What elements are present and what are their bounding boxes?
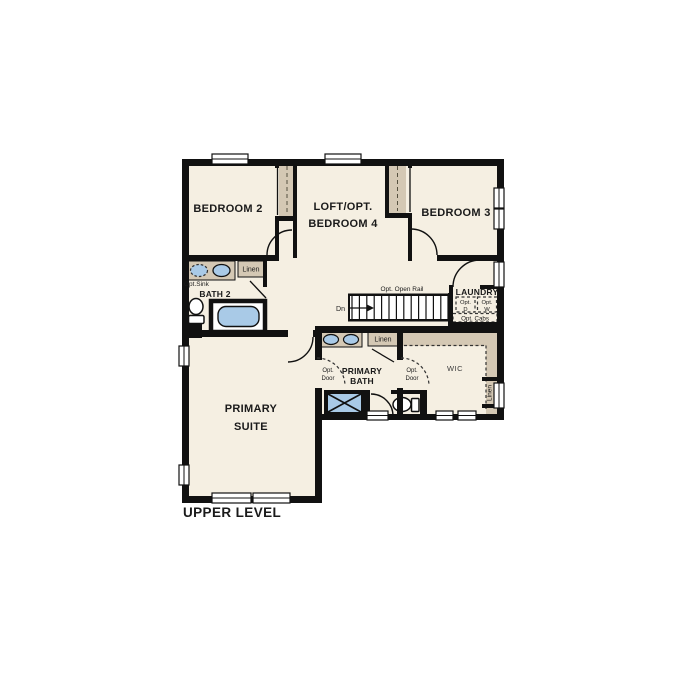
bath2-label: BATH 2: [199, 289, 230, 299]
wic-label: WIC: [447, 364, 463, 373]
linen-label-vertical: Linen: [487, 385, 494, 401]
bath2-vanity: [186, 261, 235, 280]
staircase: [348, 294, 452, 322]
window: [494, 209, 504, 229]
window: [494, 383, 504, 408]
primary-bath-vanity: [319, 332, 362, 347]
opt-dryer-label-line2: D: [463, 307, 467, 313]
opt-sink-label: Opt.Sink: [184, 281, 210, 288]
floor-plan-drawing: BEDROOM 2 LOFT/OPT. BEDROOM 4 BEDROOM 3 …: [0, 0, 687, 687]
toilet-icon: [393, 398, 419, 412]
shower: [324, 390, 365, 416]
opt-open-rail-label: Opt. Open Rail: [381, 286, 425, 293]
bedroom2-label: BEDROOM 2: [193, 203, 262, 215]
linen-label: Linen: [374, 337, 391, 344]
window: [458, 411, 476, 420]
linen-label: Linen: [242, 267, 259, 274]
opt-cabs-label: Opt. Cabs: [461, 316, 489, 323]
primary-bath-label-line2: BATH: [350, 376, 374, 386]
loft-label-line2: BEDROOM 4: [308, 218, 378, 230]
window: [494, 188, 504, 208]
opt-washer-label-line2: W: [484, 307, 490, 313]
opt-washer-label-line1: Opt.: [482, 300, 493, 306]
sink-icon: [344, 335, 359, 345]
window: [253, 493, 290, 503]
bedroom3-label: BEDROOM 3: [421, 207, 490, 219]
bathtub: [211, 301, 265, 332]
stairs-down-label: Dn: [336, 306, 345, 313]
page-title: UPPER LEVEL: [183, 505, 281, 520]
opt-dryer-label-line1: Opt.: [460, 300, 471, 306]
window: [212, 493, 251, 503]
sink-icon: [324, 335, 339, 345]
opt-door-label-line1: Opt.: [406, 368, 418, 374]
window: [325, 154, 361, 164]
window: [367, 411, 388, 420]
opt-door-label-line2: Door: [405, 376, 418, 382]
laundry-label: LAUNDRY: [456, 287, 499, 297]
window: [494, 262, 504, 287]
window: [436, 411, 453, 420]
window: [212, 154, 248, 164]
opt-door-label-line1: Opt.: [322, 368, 334, 374]
toilet-icon: [189, 299, 205, 324]
bedroom2-closet: [278, 163, 296, 217]
primary-suite-label-line1: PRIMARY: [225, 403, 278, 415]
primary-suite-label-line2: SUITE: [234, 421, 268, 433]
opt-door-label-line2: Door: [321, 376, 334, 382]
primary-bath-label-line1: PRIMARY: [342, 366, 382, 376]
sink-icon: [213, 265, 230, 277]
window: [179, 465, 189, 485]
floor-plan-page: BEDROOM 2 LOFT/OPT. BEDROOM 4 BEDROOM 3 …: [0, 0, 687, 687]
loft-label-line1: LOFT/OPT.: [314, 201, 373, 213]
window: [179, 346, 189, 366]
optional-sink-icon: [191, 265, 208, 277]
